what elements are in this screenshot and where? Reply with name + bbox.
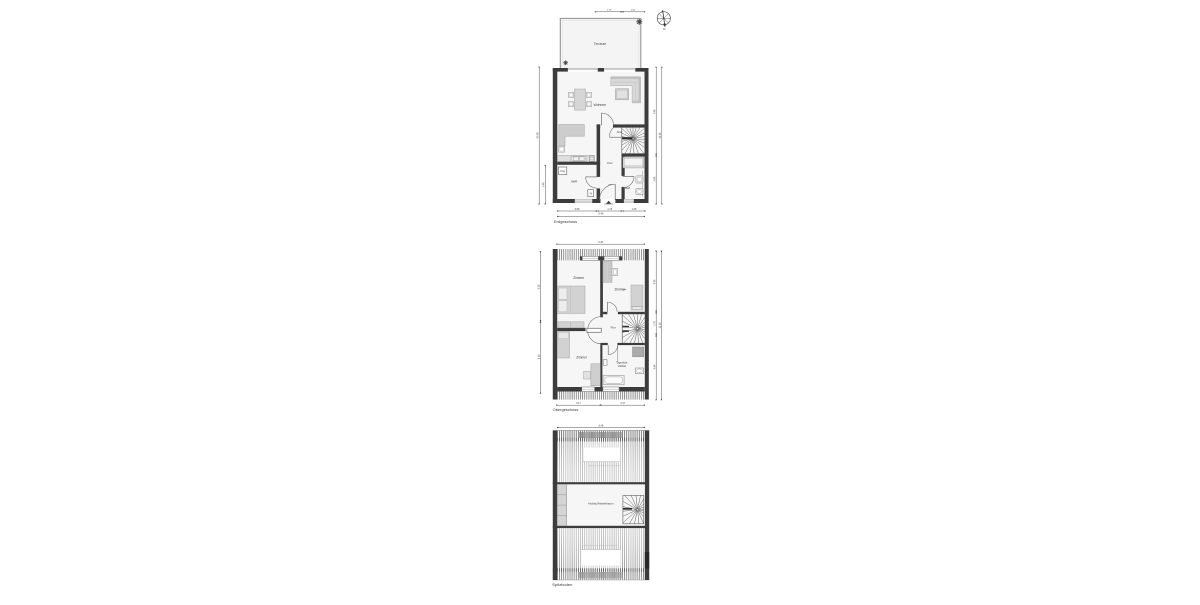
svg-text:11.16: 11.16 xyxy=(659,322,662,328)
svg-text:6.46: 6.46 xyxy=(599,212,604,215)
svg-text:3.17: 3.17 xyxy=(576,402,581,405)
svg-text:6.61: 6.61 xyxy=(653,109,656,114)
svg-text:Wohnen: Wohnen xyxy=(594,103,607,107)
svg-text:Obergeschoss: Obergeschoss xyxy=(553,407,579,412)
svg-text:10.26: 10.26 xyxy=(659,132,662,139)
svg-text:Hzg: Hzg xyxy=(560,170,565,173)
svg-text:3.65: 3.65 xyxy=(653,176,656,181)
svg-text:3.17: 3.17 xyxy=(620,402,625,405)
svg-text:HWR: HWR xyxy=(571,180,577,184)
svg-text:4.54: 4.54 xyxy=(653,279,656,284)
svg-text:5.28: 5.28 xyxy=(538,284,541,289)
svg-text:1.73: 1.73 xyxy=(653,321,656,326)
svg-text:Terrasse: Terrasse xyxy=(594,42,606,46)
svg-text:Bad: Bad xyxy=(625,186,630,190)
svg-text:1.76: 1.76 xyxy=(607,208,612,211)
svg-text:N: N xyxy=(663,27,665,31)
svg-text:10.36: 10.36 xyxy=(536,132,539,139)
svg-text:Abst.: Abst. xyxy=(617,131,623,134)
svg-text:6.46: 6.46 xyxy=(598,241,603,244)
svg-text:6.46: 6.46 xyxy=(599,424,604,427)
svg-text:5.39: 5.39 xyxy=(538,354,541,359)
svg-text:Zimmer: Zimmer xyxy=(573,276,585,280)
svg-text:1.65: 1.65 xyxy=(632,208,637,211)
svg-text:Hobby/Abstellraum: Hobby/Abstellraum xyxy=(588,502,614,506)
svg-text:Vollbad: Vollbad xyxy=(618,365,627,368)
svg-text:Zimmer: Zimmer xyxy=(576,355,588,359)
svg-text:Flur: Flur xyxy=(611,325,616,329)
svg-text:Erdgeschoss: Erdgeschoss xyxy=(554,219,577,224)
svg-text:Spitzboden: Spitzboden xyxy=(552,582,572,587)
svg-text:3.86: 3.86 xyxy=(575,208,580,211)
svg-text:2.49: 2.49 xyxy=(542,182,545,187)
svg-text:Flur: Flur xyxy=(607,161,612,165)
svg-text:4.84: 4.84 xyxy=(653,364,656,369)
